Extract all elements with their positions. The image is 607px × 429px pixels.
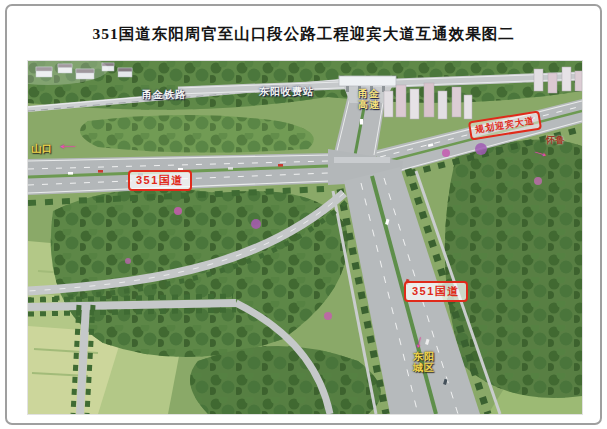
expressway-label: 甬金 高速	[358, 88, 380, 110]
huailu-label: 怀鲁	[546, 134, 565, 146]
shankou-label: 山口	[31, 143, 53, 155]
figure-title: 351国道东阳周官至山口段公路工程迎宾大道互通效果图二	[0, 24, 607, 45]
aerial-render-art	[28, 61, 582, 414]
g351-west-badge: 351国道	[128, 170, 192, 191]
city-direction-label: 东阳 城区	[413, 351, 435, 373]
buildings-top-right	[384, 83, 472, 119]
toll-station-label: 东阳收费站	[259, 86, 314, 98]
left-arrow-icon: ←	[55, 135, 81, 152]
interchange-rendering: 甬金铁路 东阳收费站 甬金 高速 山口 ← 351国道 规划迎宾大道 怀鲁 → …	[27, 60, 583, 415]
page: 351国道东阳周官至山口段公路工程迎宾大道互通效果图二	[0, 0, 607, 429]
railway-label: 甬金铁路	[142, 89, 186, 101]
g351-south-badge: 351国道	[404, 281, 468, 302]
